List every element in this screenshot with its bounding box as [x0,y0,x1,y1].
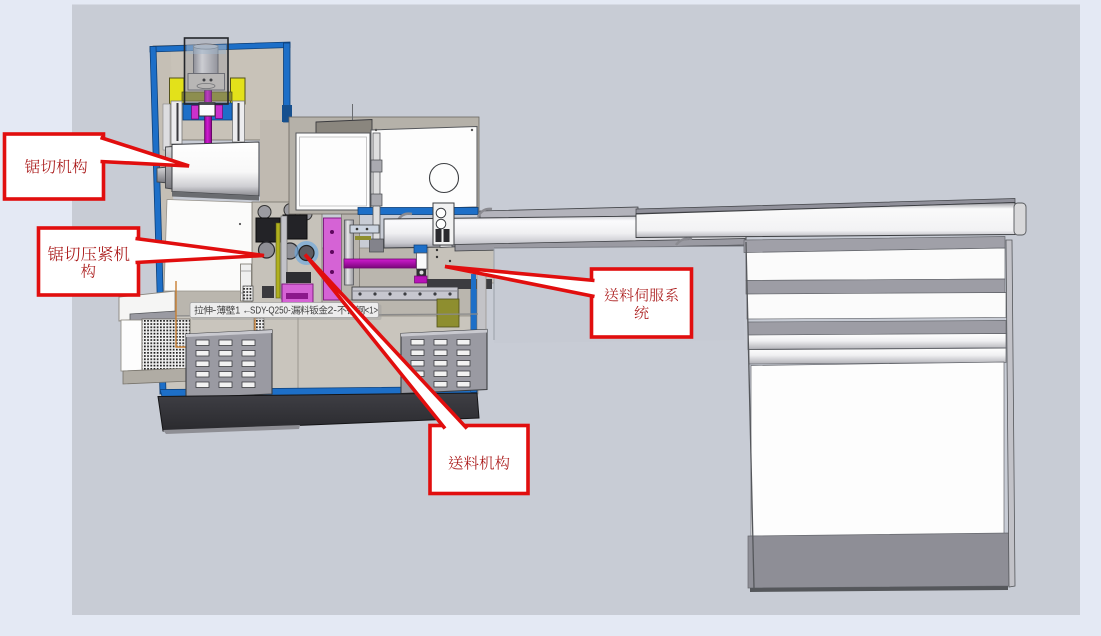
svg-text:-: - [212,306,216,317]
svg-text:1: 1 [235,306,240,317]
svg-text:<1>: <1> [365,306,379,317]
svg-text:2-: 2- [328,306,338,317]
svg-text:SDY-Q250-: SDY-Q250- [250,306,291,317]
